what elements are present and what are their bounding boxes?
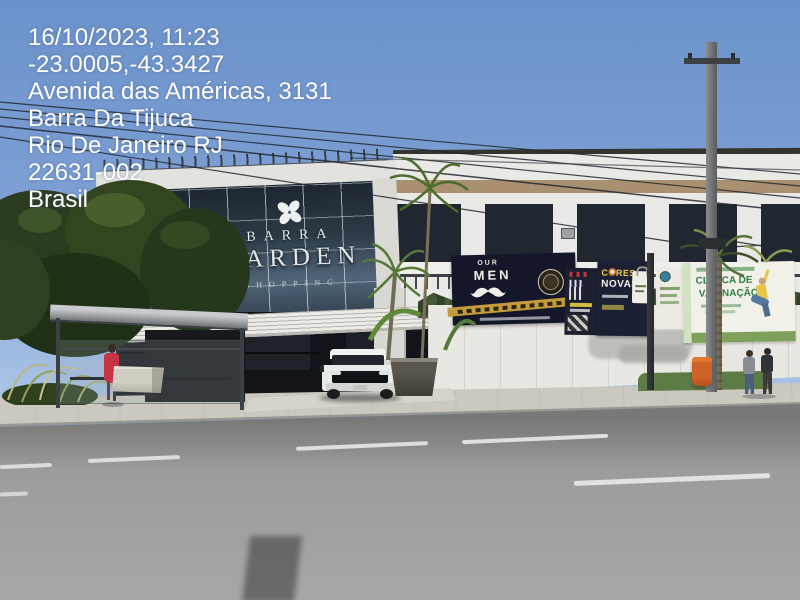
- person-torso: [743, 357, 755, 374]
- person-head: [764, 348, 771, 355]
- truck-headlight: [379, 371, 390, 375]
- overlay-street: Avenida das Américas, 3131: [28, 78, 332, 105]
- truck-wheel: [327, 389, 340, 399]
- large-planter: [390, 358, 438, 396]
- truck-mirror: [320, 366, 324, 372]
- utility-pole: [706, 42, 717, 392]
- photo-canvas: BARRA GARDEN SHOPPING OUR MEN: [0, 0, 800, 600]
- gps-overlay: 16/10/2023, 11:23 -23.0005,-43.3427 Aven…: [28, 24, 332, 213]
- overlay-city: Rio De Janeiro RJ: [28, 132, 332, 159]
- person-head: [108, 344, 116, 353]
- truck-wheel: [380, 389, 393, 399]
- right-palm-fronds: [668, 218, 798, 280]
- paint-text-bar: [602, 305, 624, 310]
- entrance-palms: [350, 150, 480, 380]
- bus-shelter-post: [240, 328, 244, 410]
- bus-shelter-rail: [56, 348, 244, 350]
- pole-insulator: [731, 53, 735, 59]
- person-torso: [761, 355, 773, 373]
- pickup-truck: [322, 349, 398, 403]
- pedestrian-pair: [742, 348, 778, 400]
- person-legs: [763, 373, 772, 394]
- pole-shadow: [242, 536, 302, 600]
- truck-plate: [353, 385, 367, 390]
- mini-text-bar: [570, 309, 590, 312]
- overlay-datetime: 16/10/2023, 11:23: [28, 24, 332, 51]
- bus-shelter-post: [56, 318, 60, 408]
- overlay-coordinates: -23.0005,-43.3427: [28, 51, 332, 78]
- overlay-zipcode: 22631-002: [28, 159, 332, 186]
- overlay-district: Barra Da Tijuca: [28, 105, 332, 132]
- person-legs: [745, 374, 754, 394]
- pole-insulator: [688, 53, 692, 59]
- sign-pole: [647, 253, 654, 390]
- panel-text-bar: [660, 301, 679, 304]
- person-jeans-leg: [762, 302, 771, 317]
- person-shadow: [102, 402, 124, 407]
- barber-footer-bar: [480, 316, 549, 321]
- overlay-country: Brasil: [28, 186, 332, 213]
- pair-shadow: [742, 394, 776, 399]
- person-head: [746, 350, 753, 357]
- trash-bin: [692, 357, 712, 386]
- pole-hardware: [698, 237, 727, 249]
- person-leg: [107, 382, 110, 400]
- mini-text-bar: [570, 303, 592, 307]
- mini-diagonal-stripes: [567, 315, 587, 331]
- truck-headlight: [330, 371, 341, 375]
- concrete-planter: [112, 366, 164, 393]
